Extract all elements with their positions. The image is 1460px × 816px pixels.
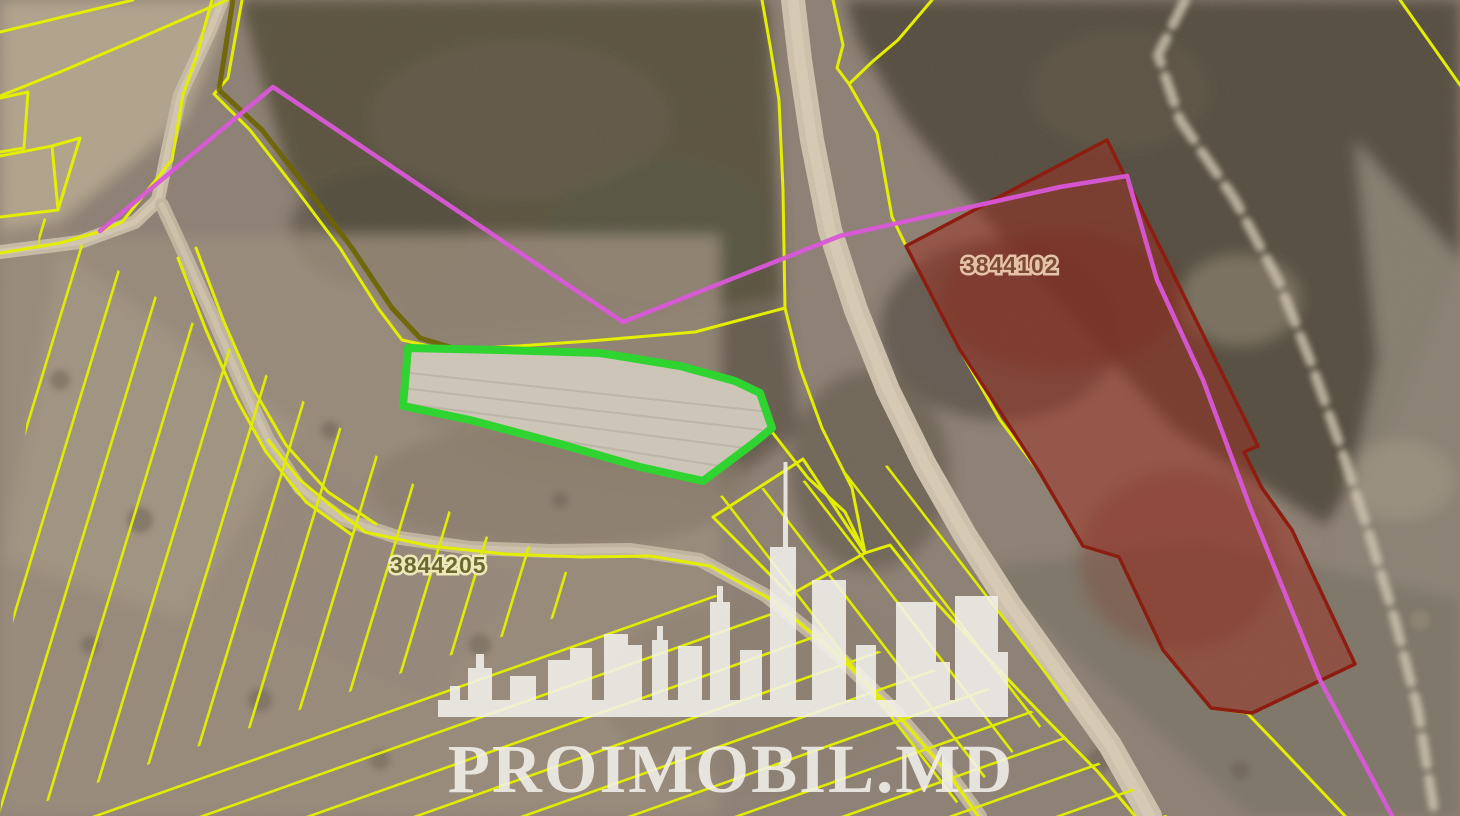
parcel-label-3844205: 3844205 [390,552,487,578]
satellite-map-svg[interactable]: 3844102 3844205 PROIMOBIL.MD [0,0,1460,816]
watermark-text: PROIMOBIL.MD [448,731,1014,807]
city-skyline-spire [784,462,788,520]
red-parcel-texture [940,230,1180,370]
map-canvas[interactable]: 3844102 3844205 PROIMOBIL.MD [0,0,1460,816]
parcel-label-3844102: 3844102 [962,252,1059,278]
red-parcel-texture [1080,470,1280,650]
